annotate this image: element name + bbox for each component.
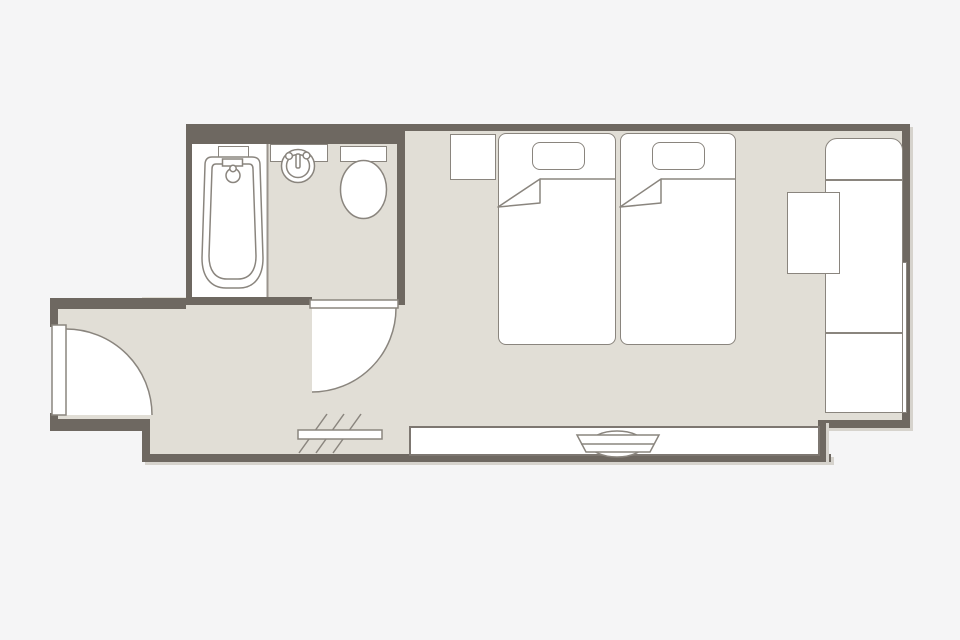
counter-unit-divider-top	[826, 179, 902, 181]
hallway-floor-main	[142, 297, 409, 454]
window-bottom	[409, 426, 820, 456]
pillow-right	[652, 142, 705, 170]
wall-bottom-right	[818, 420, 910, 428]
toilet-tank	[340, 146, 387, 162]
wall-bathroom-bottom	[186, 297, 312, 305]
pillow-left	[532, 142, 585, 170]
wall-bathroom-right	[397, 124, 405, 305]
shower-room-floor	[192, 144, 267, 297]
floor-plan	[0, 0, 960, 640]
hallway-floor-left	[58, 305, 142, 419]
chair	[787, 192, 840, 274]
wall-bathroom-left	[186, 124, 192, 305]
wall-entry-bottom	[50, 419, 150, 431]
washbasin-counter	[270, 144, 328, 162]
wall-bathroom-top	[186, 131, 405, 144]
wall-top	[186, 124, 910, 131]
wall-entry-left-upper	[50, 298, 58, 327]
nightstand	[450, 134, 496, 180]
bathtub-faucet-deck	[218, 146, 249, 159]
counter-unit-divider-bottom	[826, 332, 902, 334]
wall-entry-top	[50, 298, 186, 309]
